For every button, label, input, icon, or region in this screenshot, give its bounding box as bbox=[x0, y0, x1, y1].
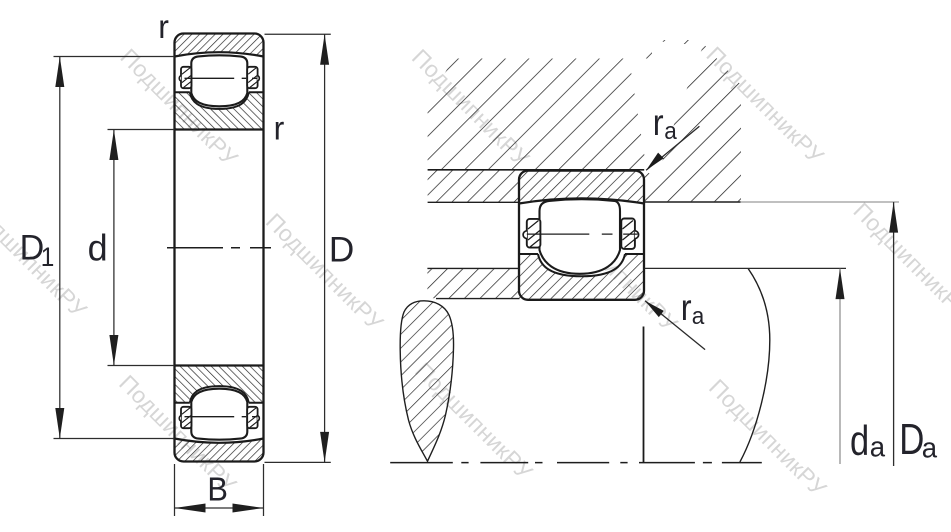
svg-text:d: d bbox=[88, 227, 108, 269]
svg-text:a: a bbox=[870, 430, 886, 463]
svg-text:ПодшипникРУ: ПодшипникРУ bbox=[848, 197, 951, 325]
svg-text:a: a bbox=[922, 431, 938, 464]
svg-text:d: d bbox=[850, 418, 869, 465]
svg-text:r: r bbox=[653, 102, 664, 143]
svg-text:D: D bbox=[329, 230, 354, 269]
svg-text:1: 1 bbox=[41, 243, 55, 272]
svg-text:r: r bbox=[158, 9, 169, 46]
svg-text:a: a bbox=[664, 117, 677, 144]
svg-text:a: a bbox=[692, 302, 705, 329]
svg-text:B: B bbox=[207, 470, 228, 507]
svg-text:D: D bbox=[899, 415, 924, 464]
svg-text:ПодшипникРУ: ПодшипникРУ bbox=[704, 374, 832, 502]
svg-text:r: r bbox=[274, 110, 285, 147]
svg-text:r: r bbox=[681, 287, 692, 328]
